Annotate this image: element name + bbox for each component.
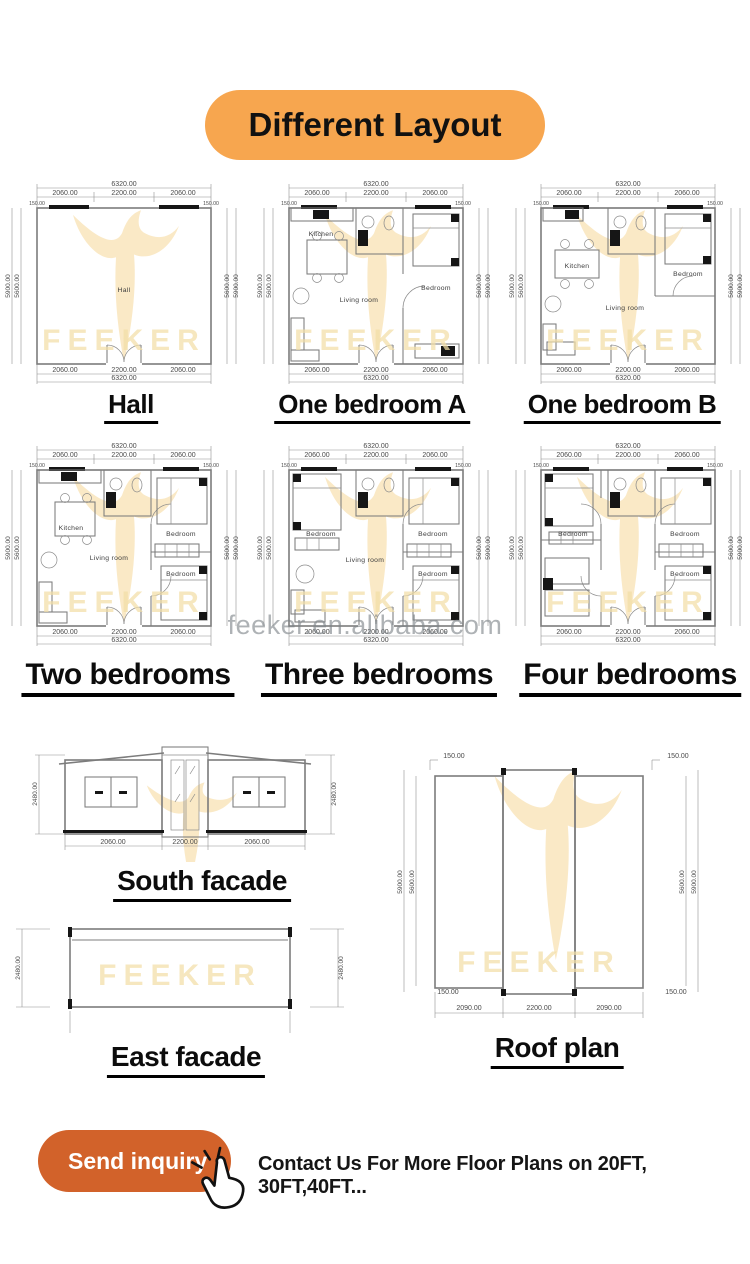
contact-text: Contact Us For More Floor Plans on 20FT,… [258, 1153, 728, 1199]
svg-text:6320.00: 6320.00 [111, 637, 136, 644]
room-label-bedroom-1: Bedroom [558, 531, 588, 538]
svg-text:2060.00: 2060.00 [170, 367, 195, 374]
east-facade-figure: 2480.00 2480.00 FEEKER [0, 915, 360, 1037]
svg-text:2090.00: 2090.00 [596, 1005, 621, 1012]
svg-text:2060.00: 2060.00 [674, 629, 699, 636]
plan-title-two-bedrooms: Two bedrooms [21, 658, 234, 697]
svg-text:6320.00: 6320.00 [363, 181, 388, 188]
room-label-bedroom-2: Bedroom [418, 531, 448, 538]
svg-text:2060.00: 2060.00 [52, 629, 77, 636]
svg-text:5600.00: 5600.00 [518, 274, 525, 298]
svg-text:6320.00: 6320.00 [111, 181, 136, 188]
svg-text:5600.00: 5600.00 [679, 870, 686, 894]
svg-text:2060.00: 2060.00 [52, 190, 77, 197]
svg-text:150.00: 150.00 [707, 201, 723, 207]
svg-text:150.00: 150.00 [281, 201, 297, 207]
svg-text:5900.00: 5900.00 [397, 870, 404, 894]
svg-text:6320.00: 6320.00 [111, 443, 136, 450]
svg-text:2060.00: 2060.00 [422, 367, 447, 374]
svg-text:150.00: 150.00 [203, 463, 219, 469]
svg-text:150.00: 150.00 [533, 463, 549, 469]
svg-text:5900.00: 5900.00 [5, 536, 12, 560]
svg-text:2060.00: 2060.00 [556, 367, 581, 374]
plan-title-south-facade: South facade [113, 866, 291, 902]
svg-text:5900.00: 5900.00 [257, 274, 264, 298]
plan-title-roof-plan: Roof plan [491, 1033, 624, 1069]
svg-text:5600.00: 5600.00 [476, 274, 483, 298]
watermark-logo-icon [495, 770, 622, 960]
svg-text:2090.00: 2090.00 [456, 1005, 481, 1012]
room-label-bedroom-3: Bedroom [418, 571, 448, 578]
svg-text:5900.00: 5900.00 [233, 274, 240, 298]
room-label-bedroom-1: Bedroom [166, 531, 196, 538]
svg-text:5900.00: 5900.00 [233, 536, 240, 560]
svg-text:2060.00: 2060.00 [422, 190, 447, 197]
svg-text:150.00: 150.00 [443, 753, 465, 760]
svg-text:150.00: 150.00 [707, 463, 723, 469]
svg-text:2200.00: 2200.00 [615, 629, 640, 636]
banner-title: Different Layout [248, 106, 501, 144]
svg-text:2060.00: 2060.00 [244, 839, 269, 846]
svg-text:150.00: 150.00 [455, 201, 471, 207]
watermark-brand: FEEKER [546, 324, 710, 357]
room-label-hall: Hall [118, 287, 131, 294]
room-label-kitchen: Kitchen [309, 231, 334, 238]
room-label-living: Living room [606, 305, 644, 312]
plan-title-east-facade: East facade [107, 1042, 265, 1078]
one-bedroom-b-floor-plan-figure: 6320.00 2060.00 2200.00 2060.00 150.00 1… [507, 178, 747, 390]
svg-text:2200.00: 2200.00 [526, 1005, 551, 1012]
svg-text:2060.00: 2060.00 [556, 190, 581, 197]
svg-text:5600.00: 5600.00 [728, 274, 735, 298]
svg-text:2200.00: 2200.00 [363, 367, 388, 374]
svg-text:2200.00: 2200.00 [615, 367, 640, 374]
room-label-bedroom-1: Bedroom [306, 531, 336, 538]
svg-text:2060.00: 2060.00 [556, 452, 581, 459]
svg-text:2060.00: 2060.00 [674, 367, 699, 374]
svg-text:2480.00: 2480.00 [338, 956, 345, 980]
svg-text:5600.00: 5600.00 [224, 274, 231, 298]
svg-text:150.00: 150.00 [533, 201, 549, 207]
svg-text:150.00: 150.00 [455, 463, 471, 469]
svg-text:2480.00: 2480.00 [15, 956, 22, 980]
svg-text:2200.00: 2200.00 [363, 190, 388, 197]
svg-text:6320.00: 6320.00 [363, 375, 388, 382]
watermark-brand: FEEKER [42, 324, 206, 357]
svg-text:150.00: 150.00 [203, 201, 219, 207]
svg-text:2200.00: 2200.00 [615, 190, 640, 197]
room-label-bedroom-2: Bedroom [670, 531, 700, 538]
svg-text:5600.00: 5600.00 [266, 274, 273, 298]
page: Different Layout 6320.00 2060.00 2200.00… [0, 0, 750, 1264]
one-bedroom-a-floor-plan-figure: 6320.00 2060.00 2200.00 2060.00 150.00 1… [255, 178, 495, 390]
svg-text:2480.00: 2480.00 [331, 782, 338, 806]
plan-title-three-bedrooms: Three bedrooms [261, 658, 497, 697]
svg-text:2200.00: 2200.00 [172, 839, 197, 846]
svg-text:5600.00: 5600.00 [409, 870, 416, 894]
room-label-living: Living room [90, 555, 128, 562]
plan-title-four-bedrooms: Four bedrooms [519, 658, 741, 697]
svg-text:5600.00: 5600.00 [14, 536, 21, 560]
svg-text:5900.00: 5900.00 [485, 274, 492, 298]
hall-floor-plan-figure: 6320.00 2060.00 2200.00 2060.00 150.00 1… [3, 178, 243, 390]
svg-text:2200.00: 2200.00 [363, 452, 388, 459]
svg-text:2200.00: 2200.00 [111, 367, 136, 374]
room-label-bedroom: Bedroom [421, 285, 451, 292]
svg-text:6320.00: 6320.00 [615, 181, 640, 188]
watermark-brand: FEEKER [294, 324, 458, 357]
svg-text:5900.00: 5900.00 [485, 536, 492, 560]
svg-text:150.00: 150.00 [29, 201, 45, 207]
svg-text:2060.00: 2060.00 [52, 367, 77, 374]
room-label-bedroom: Bedroom [673, 271, 703, 278]
svg-text:2060.00: 2060.00 [170, 190, 195, 197]
svg-text:5600.00: 5600.00 [14, 274, 21, 298]
svg-text:5900.00: 5900.00 [737, 536, 744, 560]
svg-text:5600.00: 5600.00 [266, 536, 273, 560]
svg-text:150.00: 150.00 [29, 463, 45, 469]
svg-text:150.00: 150.00 [281, 463, 297, 469]
svg-text:150.00: 150.00 [667, 753, 689, 760]
svg-text:5900.00: 5900.00 [509, 536, 516, 560]
plan-title-hall: Hall [104, 390, 158, 424]
room-label-bedroom-3: Bedroom [670, 571, 700, 578]
svg-text:2060.00: 2060.00 [674, 190, 699, 197]
svg-text:6320.00: 6320.00 [111, 375, 136, 382]
svg-text:2200.00: 2200.00 [111, 452, 136, 459]
plan-title-one-bedroom-b: One bedroom B [524, 390, 721, 424]
svg-text:150.00: 150.00 [665, 989, 687, 996]
svg-text:2200.00: 2200.00 [615, 452, 640, 459]
section-banner: Different Layout [205, 90, 545, 160]
watermark-logo-icon [147, 782, 237, 862]
watermark-brand: FEEKER [457, 946, 621, 979]
south-facade-figure: 2480.00 2480.00 2060.00 2200.00 2060.00 [25, 722, 345, 862]
svg-text:6320.00: 6320.00 [363, 443, 388, 450]
svg-text:5900.00: 5900.00 [737, 274, 744, 298]
svg-text:2200.00: 2200.00 [111, 629, 136, 636]
svg-text:2060.00: 2060.00 [100, 839, 125, 846]
svg-text:5600.00: 5600.00 [476, 536, 483, 560]
plan-title-one-bedroom-a: One bedroom A [274, 390, 470, 424]
room-label-bedroom-2: Bedroom [166, 571, 196, 578]
svg-text:2480.00: 2480.00 [32, 782, 39, 806]
svg-text:5600.00: 5600.00 [728, 536, 735, 560]
room-label-living: Living room [340, 297, 378, 304]
svg-text:2060.00: 2060.00 [422, 452, 447, 459]
svg-text:2060.00: 2060.00 [170, 452, 195, 459]
room-label-living: Living room [346, 557, 384, 564]
svg-text:2060.00: 2060.00 [304, 367, 329, 374]
click-hand-icon [183, 1146, 255, 1222]
svg-text:5900.00: 5900.00 [257, 536, 264, 560]
svg-text:5900.00: 5900.00 [509, 274, 516, 298]
svg-text:5600.00: 5600.00 [518, 536, 525, 560]
svg-text:2060.00: 2060.00 [52, 452, 77, 459]
svg-text:6320.00: 6320.00 [615, 375, 640, 382]
roof-plan-figure: 150.00 150.00 5900.00 5600.00 5600.00 59… [390, 742, 720, 1032]
svg-text:2060.00: 2060.00 [304, 452, 329, 459]
svg-text:6320.00: 6320.00 [615, 443, 640, 450]
watermark-brand: FEEKER [98, 959, 262, 992]
room-label-kitchen: Kitchen [565, 263, 590, 270]
room-label-kitchen: Kitchen [59, 525, 84, 532]
svg-text:6320.00: 6320.00 [615, 637, 640, 644]
svg-text:150.00: 150.00 [437, 989, 459, 996]
svg-text:2060.00: 2060.00 [674, 452, 699, 459]
svg-text:5900.00: 5900.00 [691, 870, 698, 894]
watermark-site-text: feeker.en.alibaba.com [140, 610, 590, 641]
svg-text:2200.00: 2200.00 [111, 190, 136, 197]
svg-text:5600.00: 5600.00 [224, 536, 231, 560]
svg-text:2060.00: 2060.00 [304, 190, 329, 197]
svg-text:5900.00: 5900.00 [5, 274, 12, 298]
